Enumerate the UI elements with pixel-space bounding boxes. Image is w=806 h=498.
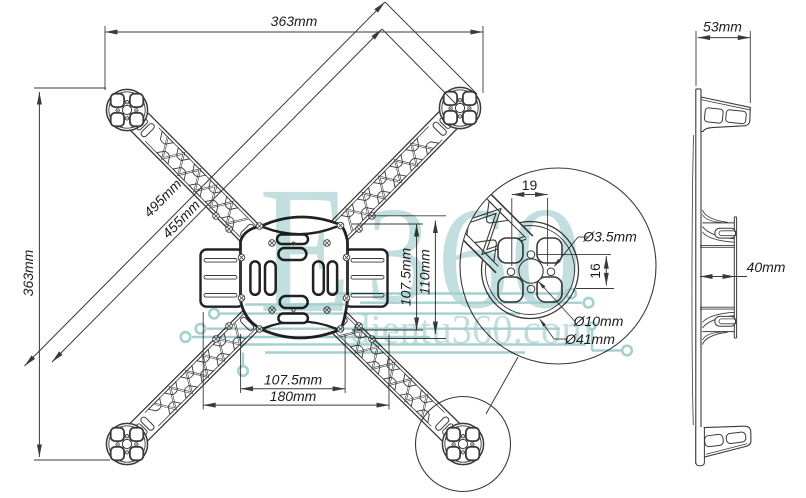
svg-text:16: 16 — [587, 263, 603, 279]
svg-text:363mm: 363mm — [20, 249, 36, 296]
svg-text:180mm: 180mm — [270, 388, 317, 404]
svg-text:363mm: 363mm — [271, 13, 318, 29]
svg-text:53mm: 53mm — [703, 19, 742, 35]
svg-text:40mm: 40mm — [747, 259, 786, 275]
svg-text:E: E — [259, 150, 351, 351]
svg-text:107.5mm: 107.5mm — [264, 372, 323, 388]
svg-text:Ø3.5mm: Ø3.5mm — [582, 229, 637, 245]
